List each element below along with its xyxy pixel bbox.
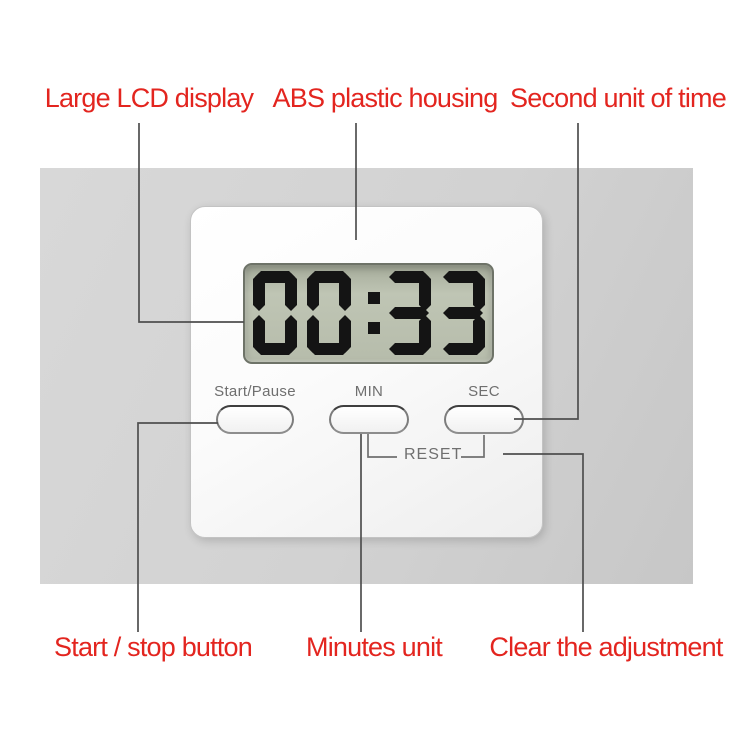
- sec-button: [444, 405, 524, 434]
- product-diagram: Start/Pause MIN SEC RESET Large LCD disp…: [0, 0, 750, 750]
- callout-large-lcd-display: Large LCD display: [45, 82, 254, 114]
- start-pause-button-label: Start/Pause: [214, 383, 296, 401]
- reset-label: RESET: [404, 446, 458, 464]
- callout-minutes-unit: Minutes unit: [306, 631, 442, 663]
- lcd-digits: [245, 265, 492, 362]
- lcd-display: [243, 263, 494, 364]
- timer-device: Start/Pause MIN SEC RESET: [190, 206, 543, 538]
- callout-clear-the-adjustment: Clear the adjustment: [489, 631, 722, 663]
- min-button: [329, 405, 409, 434]
- callout-start-stop-button: Start / stop button: [54, 631, 252, 663]
- sec-button-group: SEC: [444, 383, 524, 434]
- start-pause-button-group: Start/Pause: [216, 383, 294, 434]
- min-button-label: MIN: [355, 383, 383, 401]
- min-button-group: MIN: [329, 383, 409, 434]
- callout-abs-plastic-housing: ABS plastic housing: [273, 82, 498, 114]
- callout-second-unit-of-time: Second unit of time: [510, 82, 726, 114]
- start-pause-button: [216, 405, 294, 434]
- sec-button-label: SEC: [468, 383, 500, 401]
